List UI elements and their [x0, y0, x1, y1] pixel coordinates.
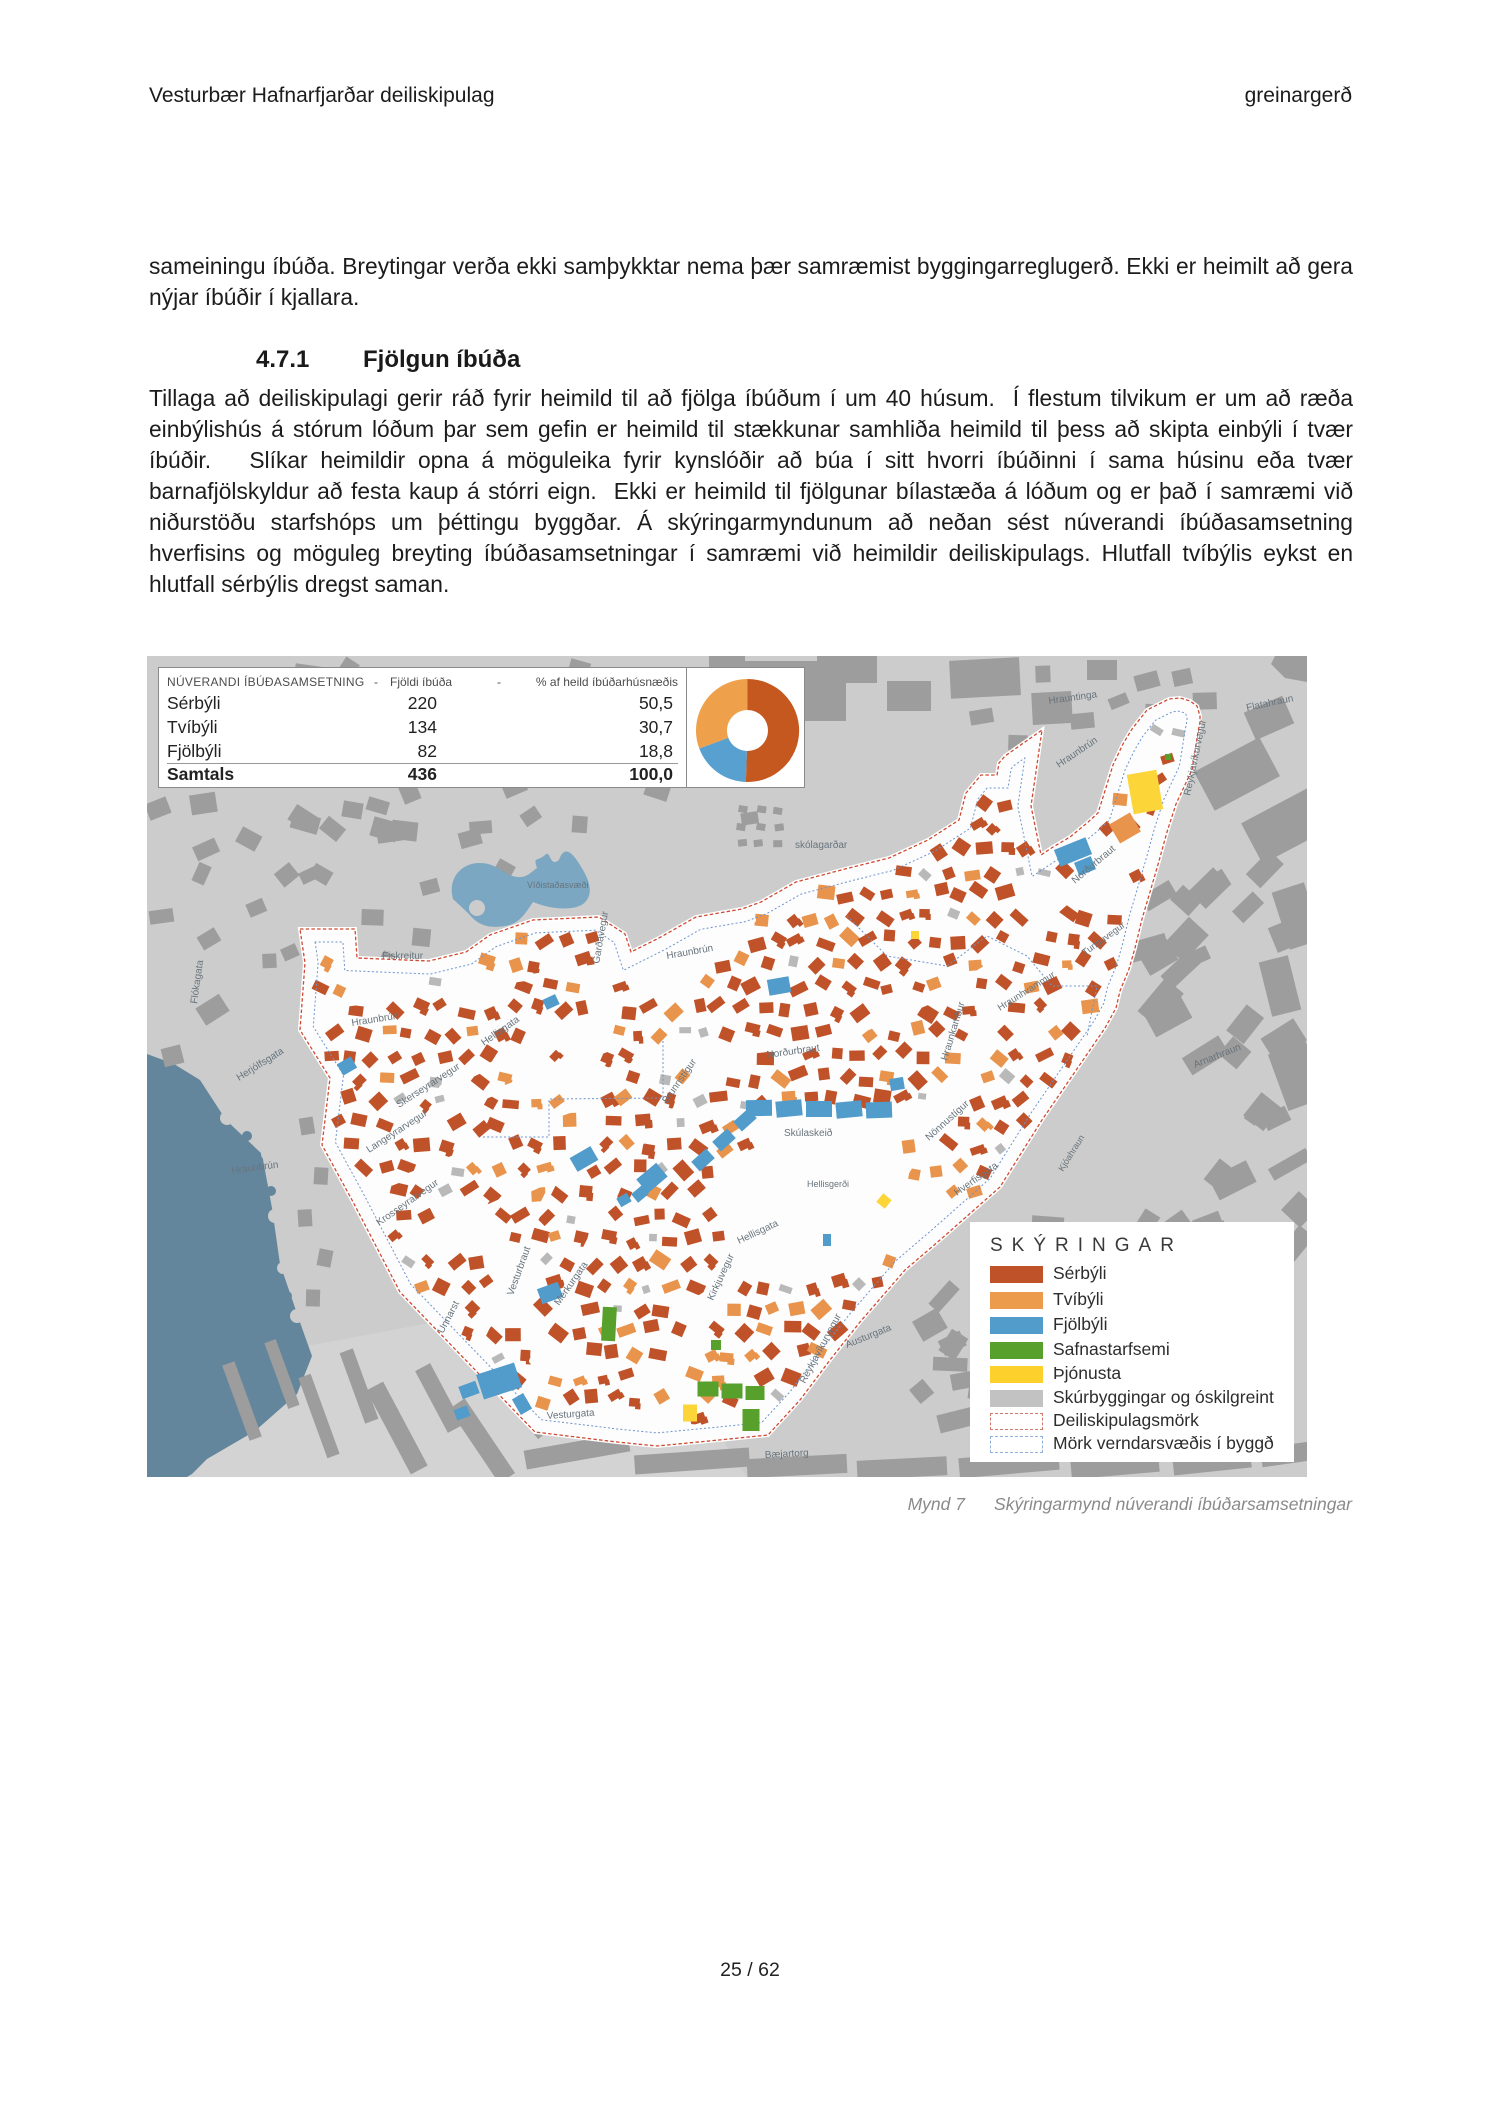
svg-text:Víðistaðasvæði: Víðistaðasvæði: [527, 880, 589, 890]
svg-text:Skúlaskeið: Skúlaskeið: [784, 1127, 833, 1139]
svg-text:Fiskreitur: Fiskreitur: [382, 951, 424, 962]
svg-text:Bæjartorg: Bæjartorg: [765, 1448, 809, 1461]
svg-text:skólagarðar: skólagarðar: [795, 839, 848, 851]
svg-text:Hellisgerði: Hellisgerði: [807, 1179, 849, 1189]
